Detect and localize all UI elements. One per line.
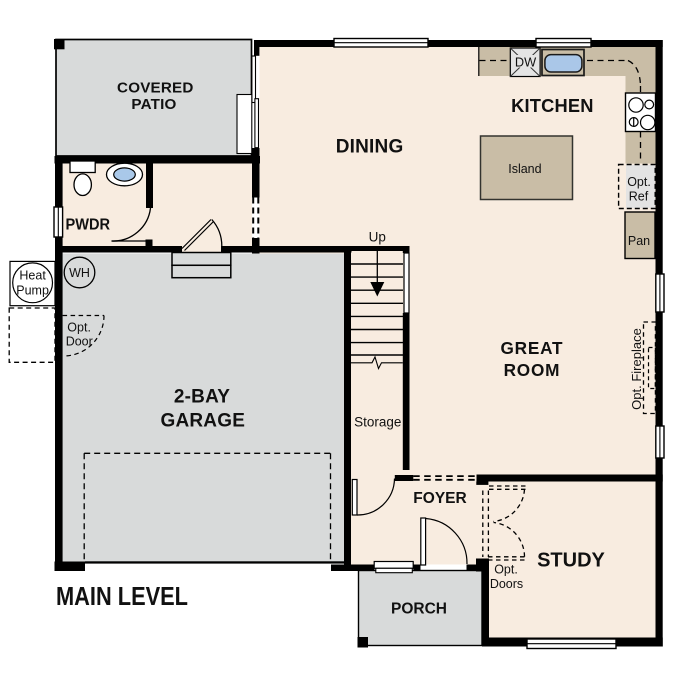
svg-text:Opt.: Opt. — [627, 175, 651, 189]
svg-text:PWDR: PWDR — [66, 217, 111, 234]
svg-text:GREAT: GREAT — [500, 338, 563, 358]
svg-text:Doors: Doors — [490, 577, 523, 591]
svg-text:Storage: Storage — [354, 415, 401, 430]
svg-text:STUDY: STUDY — [537, 550, 605, 572]
svg-text:Pan: Pan — [628, 234, 650, 248]
svg-text:Opt. Fireplace: Opt. Fireplace — [629, 328, 644, 410]
svg-text:MAIN LEVEL: MAIN LEVEL — [56, 581, 188, 611]
svg-text:DW: DW — [515, 55, 537, 70]
svg-text:FOYER: FOYER — [413, 490, 466, 507]
svg-text:2-BAY: 2-BAY — [174, 387, 230, 408]
svg-text:DINING: DINING — [336, 137, 404, 158]
svg-text:Island: Island — [508, 162, 541, 176]
svg-text:Door: Door — [66, 334, 93, 348]
svg-text:Ref: Ref — [629, 189, 649, 203]
svg-text:Opt.: Opt. — [494, 563, 518, 577]
svg-text:GARAGE: GARAGE — [160, 411, 245, 432]
svg-text:Opt.: Opt. — [67, 321, 91, 335]
svg-text:Pump: Pump — [16, 283, 49, 297]
svg-text:WH: WH — [69, 266, 90, 280]
svg-text:KITCHEN: KITCHEN — [511, 95, 594, 116]
svg-text:PATIO: PATIO — [131, 96, 176, 113]
svg-text:PORCH: PORCH — [391, 601, 447, 618]
svg-text:COVERED: COVERED — [117, 80, 194, 97]
svg-text:Up: Up — [369, 230, 386, 245]
svg-text:ROOM: ROOM — [504, 360, 561, 380]
svg-text:Heat: Heat — [19, 269, 46, 283]
